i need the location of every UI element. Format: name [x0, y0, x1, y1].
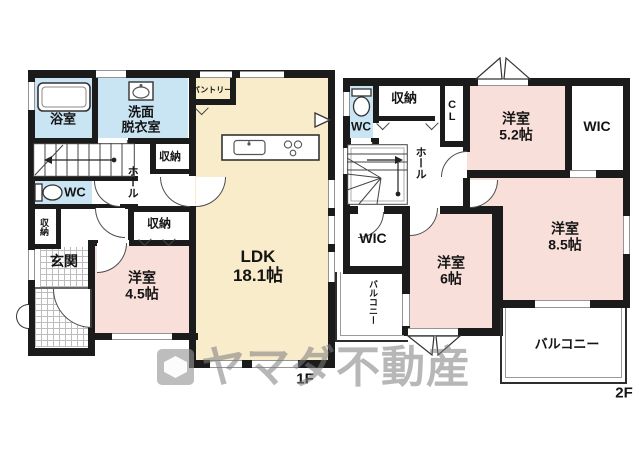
wall [150, 144, 156, 170]
room-size: 6帖 [437, 271, 465, 287]
room-label-western-85: 洋室 8.5帖 [548, 221, 581, 252]
entrance-door-leaf [90, 289, 92, 328]
room-label-hall-2f: ホール [414, 147, 426, 180]
door-arc [95, 208, 125, 238]
floor-label-2f: 2F [615, 386, 633, 403]
window [328, 180, 335, 208]
room-label-western-6: 洋室 6帖 [437, 255, 465, 286]
room-label-storage-west: 収納 [147, 217, 171, 230]
room-label-cl: CL [446, 99, 458, 123]
room-label-storage-side: 収納 [39, 218, 49, 236]
room-label-western-52: 洋室 5.2帖 [499, 111, 532, 142]
window [240, 71, 284, 78]
window [343, 92, 350, 116]
wall [565, 86, 572, 178]
room-label-balcony-w: バルコニー [368, 280, 378, 325]
room-label-wc-1f: WC [64, 186, 86, 201]
wall [463, 178, 470, 206]
window [28, 250, 35, 280]
watermark-brand-text: ヤマダ不動産 [201, 331, 471, 395]
door-arc [441, 151, 467, 177]
floorplan-canvas: 浴室 洗面 脱衣室 パントリー 収納 ホール WC 収納 玄関 収納 洋室 4.… [0, 0, 640, 469]
wall [128, 206, 189, 212]
porch-step-icon [16, 304, 29, 329]
wall [623, 86, 630, 308]
room-label-storage-hall: 収納 [159, 151, 181, 163]
window [623, 216, 630, 254]
room-label-wic-w: WIC [359, 231, 386, 247]
stairs-1f [33, 143, 135, 177]
closet-opening [570, 170, 596, 178]
brand-logo-cube-icon [164, 356, 187, 378]
wall [28, 244, 61, 249]
wall [467, 170, 630, 178]
room-label-pantry: パントリー [192, 87, 232, 96]
room-name: 洋室 [548, 221, 581, 237]
window [28, 82, 35, 110]
wall [440, 86, 445, 141]
room-label-line: 脱衣室 [121, 120, 160, 135]
room-label-western-45: 洋室 4.5帖 [125, 270, 158, 301]
wall [440, 141, 470, 147]
room-name: LDK [233, 247, 283, 266]
room-label-storage-2f: 収納 [391, 92, 417, 107]
room-name: 洋室 [437, 255, 465, 271]
wall [189, 206, 196, 333]
vent-icon [313, 110, 333, 130]
sink-icon [128, 81, 154, 101]
room-label-wic-ne: WIC [583, 119, 610, 135]
room-size: 8.5帖 [548, 237, 581, 253]
wall [150, 169, 189, 174]
brand-logo-icon [157, 349, 194, 385]
bathtub-icon [37, 82, 91, 112]
wall [28, 78, 35, 356]
wall [92, 78, 98, 138]
room-name: 洋室 [499, 111, 532, 127]
kitchen-counter-icon [221, 134, 320, 162]
room-label-line: 洗面 [121, 105, 160, 120]
room-label-entrance: 玄関 [50, 254, 78, 270]
watermark: ヤマダ不動産 [157, 331, 471, 395]
room-size: 18.1帖 [233, 266, 283, 285]
ldk-area [195, 78, 328, 360]
door-arc [160, 177, 190, 207]
room-label-wc-2f: WC [351, 120, 371, 133]
room-size: 4.5帖 [125, 286, 158, 302]
room-label-bath: 浴室 [50, 113, 76, 128]
window [535, 300, 590, 308]
wall [189, 99, 236, 105]
window [328, 216, 335, 244]
wall [28, 70, 335, 78]
casement-window-icon [473, 55, 533, 81]
room-label-ldk: LDK 18.1帖 [233, 247, 283, 285]
room-label-washroom: 洗面 脱衣室 [121, 105, 160, 134]
window [96, 70, 126, 78]
stairs-2f [347, 144, 408, 205]
wall [56, 209, 61, 247]
wall [28, 348, 95, 356]
toilet-icon [34, 182, 64, 203]
window [328, 252, 335, 282]
toilet-icon [350, 88, 374, 118]
room-name: 洋室 [125, 270, 158, 286]
room-label-hall-1f: ホール [126, 166, 138, 199]
window [200, 71, 232, 78]
room-label-balcony-s: バルコニー [535, 338, 600, 353]
room-size: 5.2帖 [499, 127, 532, 143]
